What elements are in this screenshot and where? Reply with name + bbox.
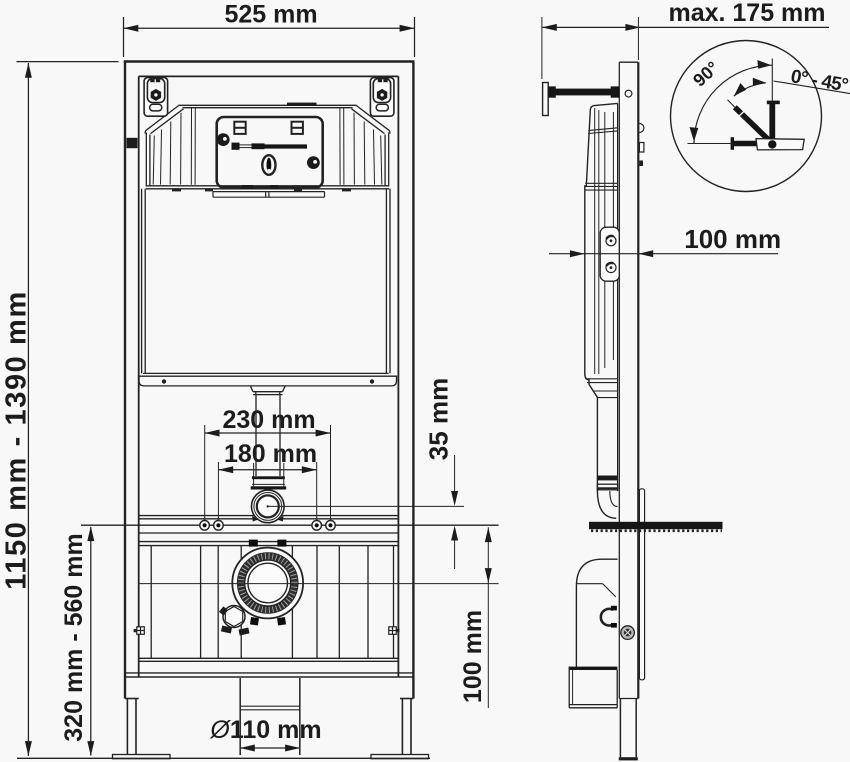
svg-text:max. 175 mm: max. 175 mm <box>668 0 825 27</box>
svg-text:1150 mm - 1390 mm: 1150 mm - 1390 mm <box>1 290 33 590</box>
svg-text:35 mm: 35 mm <box>424 378 454 460</box>
svg-text:230 mm: 230 mm <box>222 406 315 434</box>
svg-text:320 mm - 560 mm: 320 mm - 560 mm <box>60 533 88 741</box>
svg-text:1m: 1m <box>127 141 137 148</box>
svg-text:100 mm: 100 mm <box>459 610 487 703</box>
svg-text:100 mm: 100 mm <box>684 224 781 254</box>
svg-text:180 mm: 180 mm <box>224 440 317 468</box>
svg-text:Ø110 mm: Ø110 mm <box>209 716 321 744</box>
svg-text:525 mm: 525 mm <box>224 1 317 29</box>
